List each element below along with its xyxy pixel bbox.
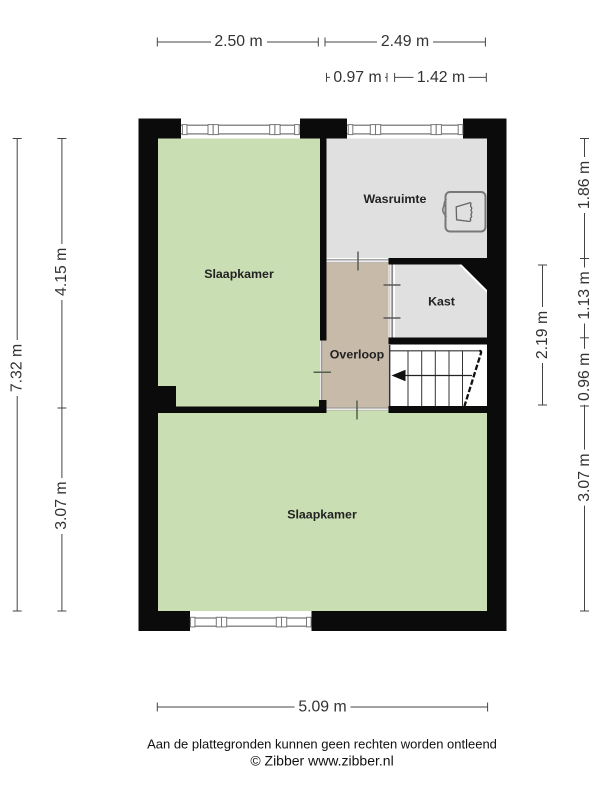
svg-text:5.09 m: 5.09 m bbox=[298, 699, 346, 716]
svg-text:1.86 m: 1.86 m bbox=[576, 161, 593, 209]
svg-text:1.42 m: 1.42 m bbox=[417, 69, 465, 86]
svg-text:Slaapkamer: Slaapkamer bbox=[287, 508, 357, 522]
svg-text:3.07 m: 3.07 m bbox=[53, 481, 70, 529]
svg-text:2.49 m: 2.49 m bbox=[381, 33, 429, 50]
svg-text:© Zibber www.zibber.nl: © Zibber www.zibber.nl bbox=[250, 753, 393, 769]
svg-text:0.97 m: 0.97 m bbox=[333, 69, 381, 86]
svg-text:Overloop: Overloop bbox=[330, 347, 385, 361]
svg-text:Wasruimte: Wasruimte bbox=[364, 192, 427, 206]
svg-text:7.32 m: 7.32 m bbox=[9, 344, 26, 392]
svg-text:1.13 m: 1.13 m bbox=[576, 271, 593, 319]
svg-text:2.19 m: 2.19 m bbox=[534, 311, 551, 359]
svg-text:Slaapkamer: Slaapkamer bbox=[204, 267, 274, 281]
svg-text:0.96 m: 0.96 m bbox=[576, 353, 593, 401]
svg-text:Aan de plattegronden kunnen ge: Aan de plattegronden kunnen geen rechten… bbox=[147, 737, 497, 752]
svg-text:4.15 m: 4.15 m bbox=[53, 248, 70, 296]
svg-text:3.07 m: 3.07 m bbox=[576, 453, 593, 501]
svg-text:2.50 m: 2.50 m bbox=[214, 33, 262, 50]
svg-text:Kast: Kast bbox=[428, 295, 455, 309]
